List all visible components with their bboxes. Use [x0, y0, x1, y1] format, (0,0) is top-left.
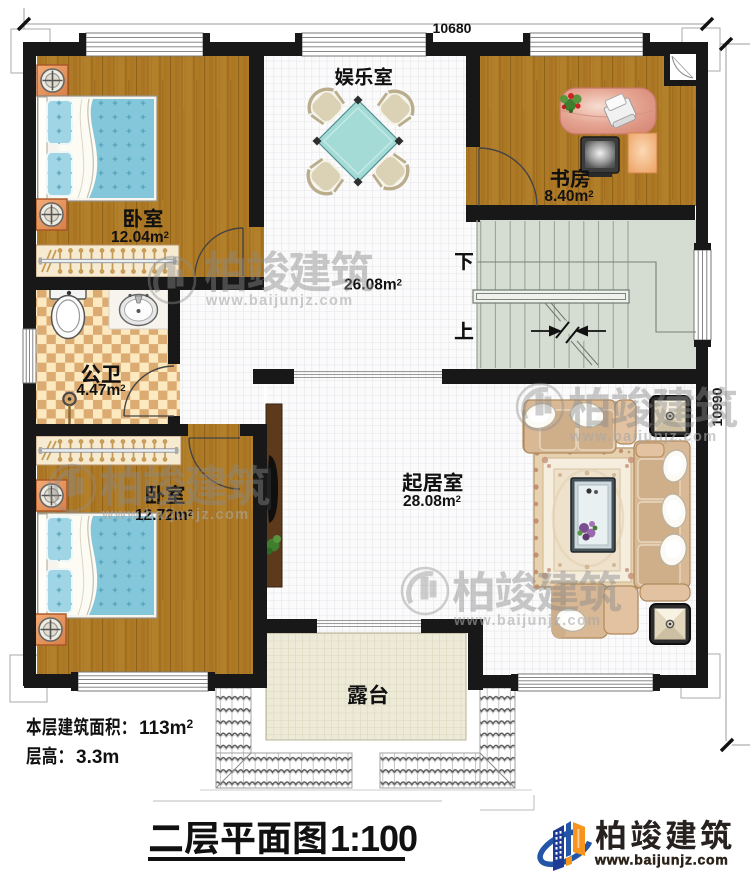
svg-text:3.3m: 3.3m [76, 747, 119, 768]
svg-text:www.baijunjz.com: www.baijunjz.com [453, 613, 602, 629]
svg-text:www.baijunjz.com: www.baijunjz.com [205, 293, 354, 309]
svg-text:www.baijunjz.com: www.baijunjz.com [569, 429, 718, 445]
svg-text:12.04m2: 12.04m2 [111, 229, 169, 246]
svg-text:4.47m2: 4.47m2 [76, 382, 125, 399]
svg-text:www.baijunjz.com: www.baijunjz.com [101, 507, 250, 523]
svg-text:113m2: 113m2 [139, 717, 194, 739]
svg-text:10680: 10680 [433, 20, 472, 36]
svg-text:1:100: 1:100 [330, 818, 417, 859]
svg-text:28.08m2: 28.08m2 [403, 493, 461, 510]
svg-text:www.baijunjz.com: www.baijunjz.com [594, 852, 729, 868]
svg-text:8.40m2: 8.40m2 [544, 188, 593, 205]
